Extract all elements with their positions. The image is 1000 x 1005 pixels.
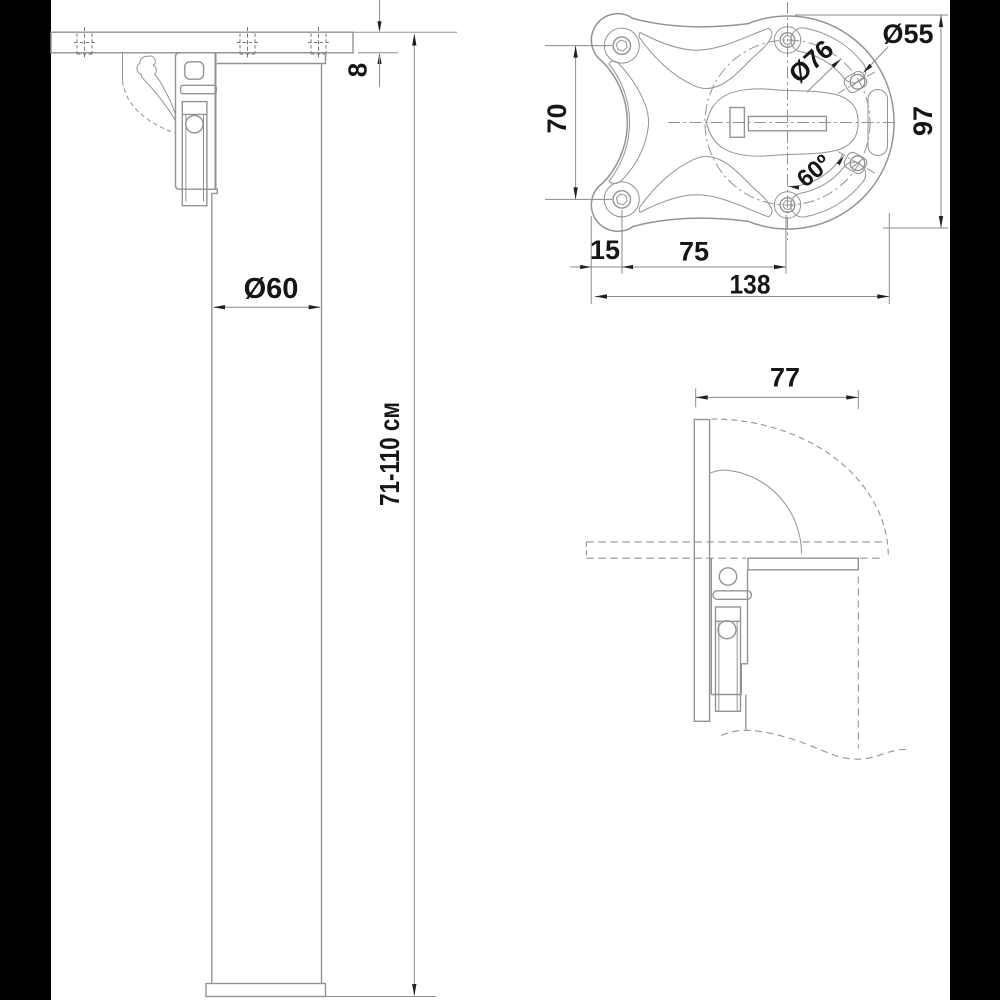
svg-text:70: 70: [542, 103, 572, 133]
svg-text:71-110 см: 71-110 см: [374, 402, 405, 506]
svg-text:77: 77: [770, 363, 800, 393]
svg-text:8: 8: [343, 63, 373, 77]
svg-text:Ø55: Ø55: [882, 19, 933, 49]
svg-text:15: 15: [590, 235, 620, 265]
svg-text:138: 138: [730, 270, 771, 300]
svg-text:Ø60: Ø60: [244, 273, 299, 305]
svg-text:75: 75: [679, 237, 709, 267]
svg-text:97: 97: [908, 106, 938, 136]
